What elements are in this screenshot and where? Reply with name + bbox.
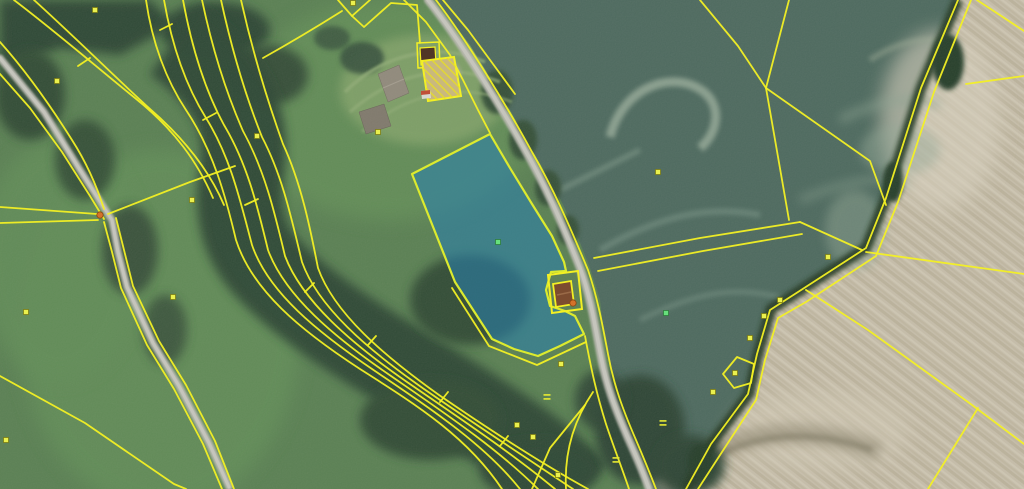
parcel-marker[interactable] <box>93 8 98 13</box>
parcel-marker[interactable] <box>826 255 831 260</box>
parcel-marker[interactable] <box>556 473 561 478</box>
parcel-marker[interactable] <box>190 198 195 203</box>
parcel-marker[interactable] <box>733 371 738 376</box>
parcel-marker[interactable] <box>171 295 176 300</box>
landuse-symbol[interactable] <box>544 398 551 400</box>
landuse-symbol[interactable] <box>544 394 551 396</box>
map-viewport[interactable] <box>0 0 1024 489</box>
parcel-marker[interactable] <box>656 170 661 175</box>
parcel-marker[interactable] <box>711 390 716 395</box>
parcel-marker[interactable] <box>778 298 783 303</box>
parcel-marker[interactable] <box>376 130 381 135</box>
parcel-marker[interactable] <box>748 336 753 341</box>
parcel-marker-green[interactable] <box>496 240 501 245</box>
landuse-symbol[interactable] <box>613 457 620 459</box>
parcel-marker[interactable] <box>531 435 536 440</box>
parcel-marker[interactable] <box>4 438 9 443</box>
parcel-marker[interactable] <box>762 314 767 319</box>
landuse-symbol[interactable] <box>660 424 667 426</box>
parcel-marker[interactable] <box>55 79 60 84</box>
parcel-marker[interactable] <box>559 362 564 367</box>
parcel-marker[interactable] <box>515 423 520 428</box>
parcel-marker-green[interactable] <box>664 311 669 316</box>
parcel-marker[interactable] <box>24 310 29 315</box>
parcel-marker[interactable] <box>255 134 260 139</box>
junction-point[interactable] <box>570 300 576 306</box>
parcel-marker[interactable] <box>351 1 356 6</box>
junction-point[interactable] <box>97 212 103 218</box>
landuse-symbol[interactable] <box>613 461 620 463</box>
map-canvas[interactable] <box>0 0 1024 489</box>
landuse-symbol[interactable] <box>660 420 667 422</box>
